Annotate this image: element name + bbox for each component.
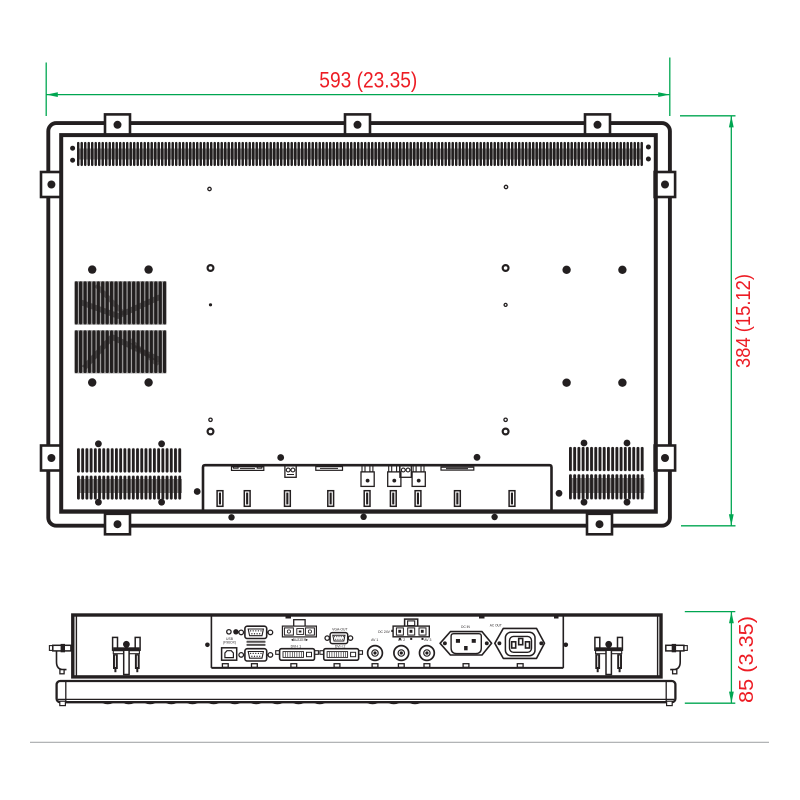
svg-text:AV 1: AV 1 [371,638,378,642]
svg-text:AC OUT: AC OUT [490,624,502,628]
svg-text:AV 3: AV 3 [424,638,431,642]
svg-text:AV 2: AV 2 [398,638,405,642]
svg-text:384 (15.12): 384 (15.12) [732,274,755,368]
svg-text:593 (23.35): 593 (23.35) [319,68,417,93]
svg-text:VGA-OUT: VGA-OUT [332,628,347,632]
svg-text:BUZZER: BUZZER [293,638,307,642]
svg-text:DC 24V: DC 24V [378,630,391,634]
svg-text:85 (3.35): 85 (3.35) [735,616,758,703]
svg-text:DC IN: DC IN [461,625,470,629]
svg-text:(F96OX): (F96OX) [223,641,236,645]
